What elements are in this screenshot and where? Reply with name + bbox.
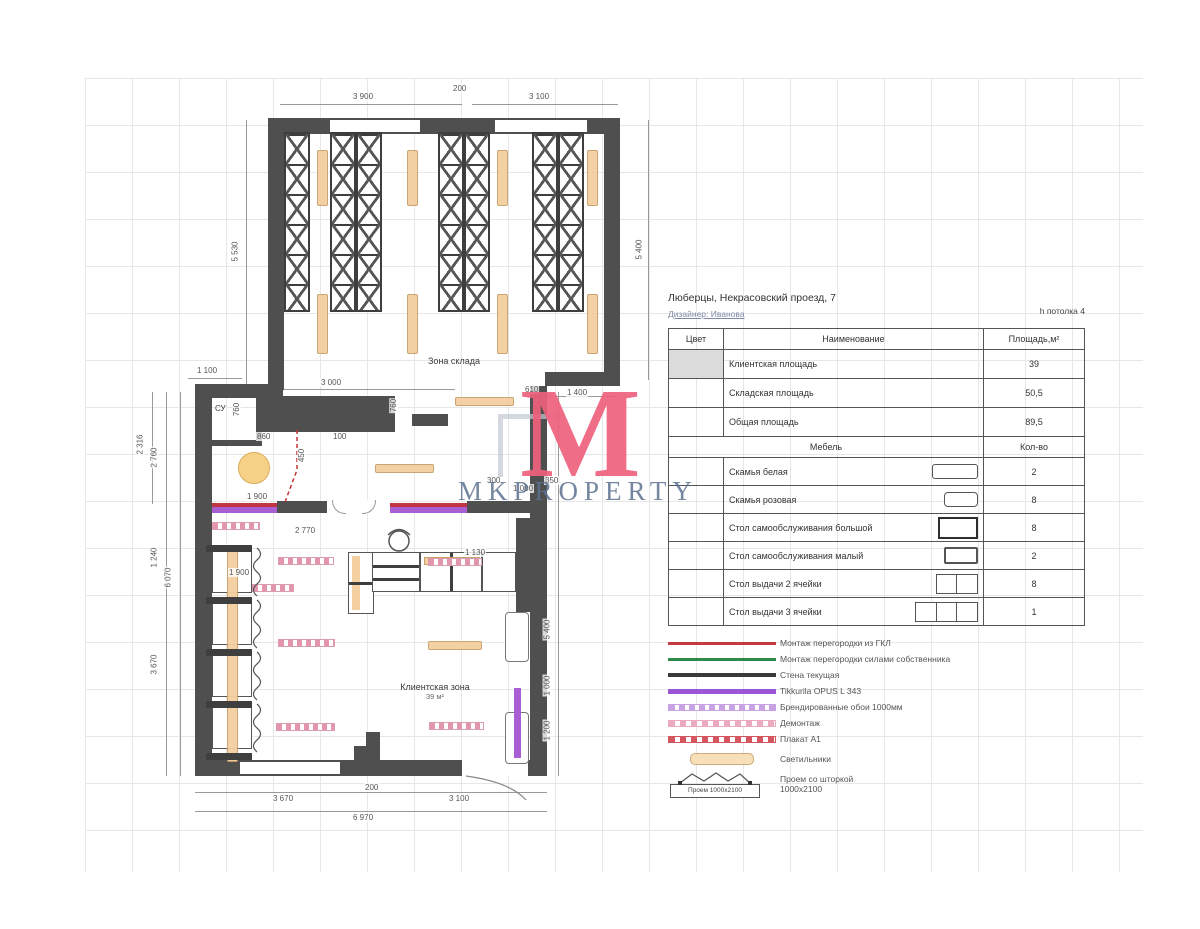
table-3-cells-icon [917,602,979,622]
legend-item: Брендированные обои 1000мм [668,702,1068,712]
red-line-swatch [668,642,776,645]
area-name: Общая площадь [724,408,984,437]
table-row: Складская площадь 50,5 [669,379,1085,408]
dimension-label: 350 [544,476,559,485]
furniture-count: 8 [984,570,1085,598]
light-strip [317,294,328,354]
legend-swatch [668,689,780,694]
storage-rack [464,132,490,312]
legend-swatch [668,736,780,743]
dimension-label: 3 100 [448,794,470,803]
furniture-count: 2 [984,458,1085,486]
legend-item: Плакат А1 [668,734,1068,744]
storage-rack [330,132,356,312]
purple-line-swatch [668,689,776,694]
chair-icon [384,524,414,554]
wallpaper-dash-swatch [668,704,776,711]
light-strip [587,294,598,354]
empty-cell [669,570,724,598]
furniture-section-label: Мебель [669,437,984,458]
furniture-cell: Скамья розовая [724,486,984,514]
table-row: Клиентская площадь 39 [669,350,1085,379]
watermark-frame [498,414,561,477]
furniture-name: Стол выдачи 3 ячейки [729,607,822,617]
floor-plan-sheet: { "watermark": { "monogram": "M", "brand… [0,0,1200,929]
wall-pilaster [516,518,530,612]
bench-divider [206,597,252,604]
bench-divider [206,753,252,760]
empty-cell [669,598,724,626]
color-swatch-cell [669,408,724,437]
legend-item: Светильники [668,753,1068,765]
dimension-label: 3 100 [528,92,550,101]
light-strip [587,150,598,206]
bench-divider [206,649,252,656]
area-name: Складская площадь [724,379,984,408]
legend-item: Монтаж перегородки силами собственника [668,654,1068,664]
dimension-label: 3 900 [352,92,374,101]
bench-divider [206,545,252,552]
demolition-strip [212,522,260,530]
new-partition-line [390,503,467,507]
wc-label: СУ [215,404,226,413]
dimension-label: 200 [364,783,379,792]
storage-rack [558,132,584,312]
branded-wallpaper-strip [514,688,521,758]
new-partition-line [212,503,277,507]
dim-line [280,104,462,105]
dimension-label: 1 900 [228,568,250,577]
table-row: Стол самообслуживания большой 8 [669,514,1085,542]
light-strip [407,150,418,206]
storage-zone-label: Зона склада [428,356,480,366]
bench-pink-icon [944,492,978,507]
furniture-cell: Скамья белая [724,458,984,486]
legend-swatch [668,658,780,661]
legend-swatch [668,753,780,765]
legend-label: Брендированные обои 1000мм [780,702,903,712]
light-strip [497,150,508,206]
legend-item: Tikkurila OPUS L 343 [668,686,1068,696]
poster-a1 [278,557,334,565]
client-zone-name: Клиентская зона [385,682,485,692]
storage-rack [532,132,558,312]
dimension-label: 3 670 [150,653,159,675]
table-row: Скамья розовая 8 [669,486,1085,514]
dimension-label: 100 [332,432,347,441]
designer-link[interactable]: Дизайнер: Иванова [668,309,745,319]
table-small-icon [944,547,978,564]
legend-swatch [668,642,780,645]
dim-line [472,104,618,105]
area-table: Цвет Наименование Площадь,м² Клиентская … [668,328,1085,626]
ceiling-height-text: h потолка 4 [1040,306,1085,316]
bench-divider [206,701,252,708]
black-line-swatch [668,673,776,677]
shelf-divider [373,565,419,568]
dimension-label: 1 100 [196,366,218,375]
legend-swatch [668,720,780,727]
dimension-label: 760 [389,398,398,413]
dim-line [195,811,547,812]
dimension-label: 5 530 [231,240,240,262]
poster-a1 [429,722,484,730]
furniture-count: 1 [984,598,1085,626]
legend-label: Стена текущая [780,670,839,680]
wall [268,118,284,390]
furniture-count: 8 [984,486,1085,514]
furniture-name: Стол выдачи 2 ячейки [729,579,822,589]
legend-item: Стена текущая [668,670,1068,680]
storage-rack [438,132,464,312]
light-strip [497,294,508,354]
legend-swatch [668,673,780,677]
wall [545,372,620,386]
legend: Монтаж перегородки из ГКЛ Монтаж перегор… [668,638,1068,803]
dimension-label: 2 770 [294,526,316,535]
furniture-count: 8 [984,514,1085,542]
dimension-label: 3 000 [320,378,342,387]
legend-item: Демонтаж [668,718,1068,728]
furniture-name: Скамья розовая [729,495,796,505]
color-swatch-cell [669,350,724,379]
dimension-label: 760 [232,402,241,417]
furniture-name: Стол самообслуживания малый [729,551,863,561]
address-text: Люберцы, Некрасовский проезд, 7 [668,292,1085,304]
existing-wall-segment [467,501,530,513]
legend-item: Монтаж перегородки из ГКЛ [668,638,1068,648]
shelf-divider [373,578,419,581]
light-strip [455,397,514,406]
table-header-row: Цвет Наименование Площадь,м² [669,329,1085,350]
poster-dash-swatch [668,736,776,743]
storage-rack [284,132,310,312]
wall [195,384,212,776]
dimension-label: 6 070 [164,566,173,588]
column-header-name: Наименование [724,329,984,350]
light-strip [317,150,328,206]
dimension-label: 1 240 [150,546,159,568]
table-row: Стол выдачи 2 ячейки 8 [669,570,1085,598]
dimension-label: 5 400 [543,618,552,640]
legend-swatch: Проем 1000х2100 [668,771,780,797]
empty-cell [669,514,724,542]
area-value: 50,5 [984,379,1085,408]
wall [604,118,620,378]
poster-a1 [428,558,482,566]
legend-label: Проем со шторкой 1000х2100 [780,774,853,794]
wc-wall [212,440,262,446]
furniture-cell: Стол самообслуживания большой [724,514,984,542]
furniture-header-row: Мебель Кол-во [669,437,1085,458]
area-value: 39 [984,350,1085,379]
dimension-label: 3 670 [272,794,294,803]
table-large-icon [938,517,978,539]
round-table [238,452,270,484]
wall-block [258,396,395,432]
step-block [354,746,366,760]
empty-cell [669,542,724,570]
demolition-dash-swatch [668,720,776,727]
dimension-label: 6 970 [352,813,374,822]
bench [505,612,529,662]
dimension-label: 2 316 [136,433,145,455]
legend-label: Tikkurila OPUS L 343 [780,686,861,696]
furniture-cell: Стол самообслуживания малый [724,542,984,570]
dimension-label: 1 200 [543,719,552,741]
dimension-label: 860 [256,432,271,441]
storage-rack [356,132,382,312]
dimension-label: 200 [452,84,467,93]
opening-symbol: Проем 1000х2100 [668,771,776,797]
table-row: Стол выдачи 3 ячейки 1 [669,598,1085,626]
legend-swatch [668,704,780,711]
table-row: Скамья белая 2 [669,458,1085,486]
poster-a1 [276,723,335,731]
zigzag-icon [674,769,754,787]
furniture-count: 2 [984,542,1085,570]
legend-label: Плакат А1 [780,734,821,744]
dimension-label: 1 000 [543,674,552,696]
pickup-table [482,552,516,592]
curtain-zigzag [248,546,266,762]
light-strip [375,464,434,473]
furniture-cell: Стол выдачи 2 ячейки [724,570,984,598]
legend-label: Монтаж перегородки из ГКЛ [780,638,891,648]
client-zone-area: 39 м² [385,692,485,701]
light-bar-swatch [690,753,754,765]
light-strip [407,294,418,354]
dim-line [246,120,247,386]
area-name: Клиентская площадь [724,350,984,379]
pickup-table [372,552,420,592]
info-panel: Люберцы, Некрасовский проезд, 7 Дизайнер… [668,292,1085,626]
dim-line [188,378,242,379]
column-header-area: Площадь,м² [984,329,1085,350]
dimension-label: 1 000 [512,484,534,493]
dimension-label: 300 [486,476,501,485]
empty-cell [669,486,724,514]
step-block [366,732,380,760]
table-row: Стол самообслуживания малый 2 [669,542,1085,570]
legend-label: Светильники [780,754,831,764]
dimension-label: 1 130 [464,548,486,557]
table-2-cells-icon [937,574,978,594]
dim-line [283,389,455,390]
dim-line [648,120,649,380]
empty-cell [669,458,724,486]
dim-line [180,392,181,776]
dim-line [195,792,380,793]
legend-item: Проем 1000х2100 Проем со шторкой 1000х21… [668,771,1068,797]
column-header-color: Цвет [669,329,724,350]
window-opening [240,760,340,776]
dimension-label: 5 400 [635,238,644,260]
dimension-label: 1 400 [566,388,588,397]
demolition-marks [280,428,310,508]
furniture-name: Стол самообслуживания большой [729,523,872,533]
legend-label: Монтаж перегородки силами собственника [780,654,950,664]
table-row: Общая площадь 89,5 [669,408,1085,437]
dimension-label: 1 900 [246,492,268,501]
furniture-name: Скамья белая [729,467,788,477]
dimension-label: 610 [524,385,539,394]
furniture-cell: Стол выдачи 3 ячейки [724,598,984,626]
door-swing-arc [462,774,532,804]
client-zone-label: Клиентская зона 39 м² [385,682,485,701]
count-column-header: Кол-во [984,437,1085,458]
legend-label: Демонтаж [780,718,820,728]
shelf-divider [349,582,373,585]
poster-a1 [278,639,335,647]
area-value: 89,5 [984,408,1085,437]
color-swatch-cell [669,379,724,408]
bench-white-icon [932,464,978,479]
self-service-cabinet [348,552,374,614]
wall-stub [412,414,448,426]
dimension-label: 2 760 [150,446,159,468]
green-line-swatch [668,658,776,661]
dimension-label: 450 [297,448,306,463]
light-strip [428,641,482,650]
